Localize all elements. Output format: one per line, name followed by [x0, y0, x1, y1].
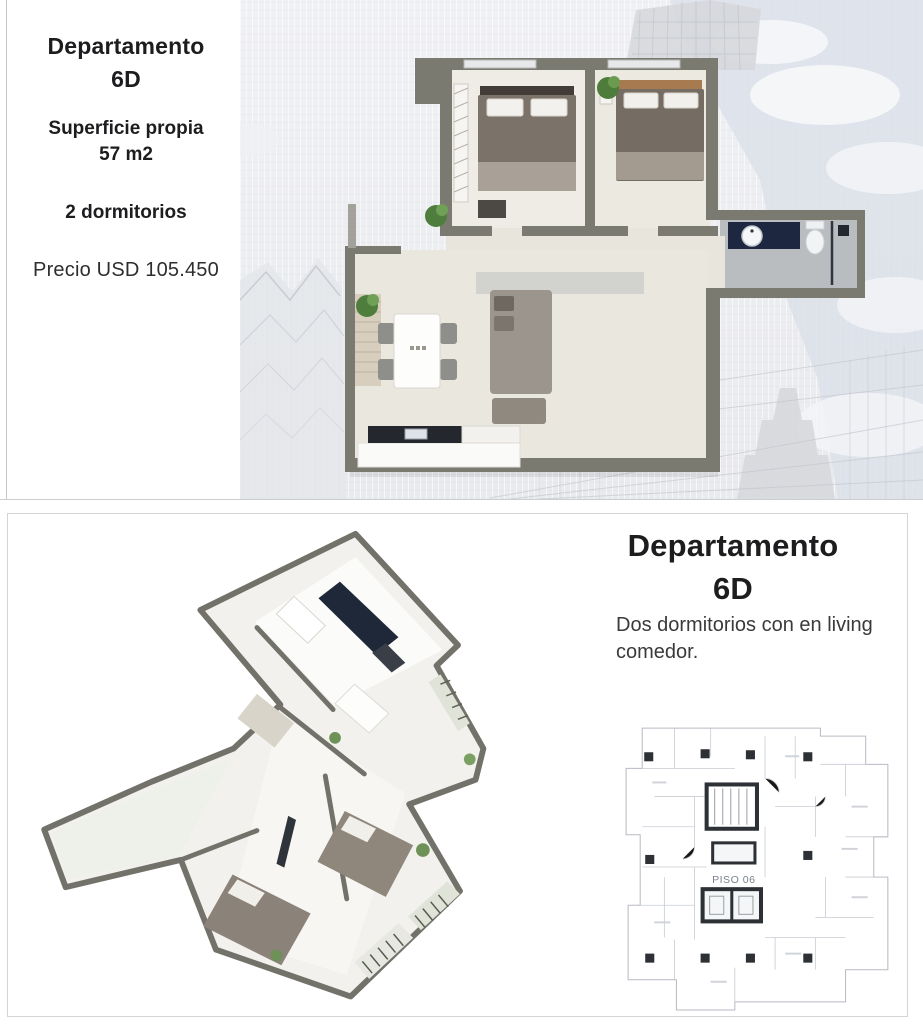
blueprint-elevator-1 [713, 843, 755, 863]
plan-shadow [350, 472, 718, 477]
blueprint-floor-label: PISO 06 [712, 874, 755, 886]
window-bedroom1 [464, 60, 536, 68]
isometric-floorplan-render [26, 528, 566, 1016]
top-panel: Departamento 6D Superficie propia 57 m2 … [0, 0, 923, 500]
topdown-floorplan-render [240, 0, 923, 499]
surface-area-line1: Superficie propia [8, 116, 244, 142]
apartment-title-line1: Departamento [8, 30, 244, 63]
window-bedroom2 [608, 60, 680, 68]
apartment-title-line2: 6D [8, 63, 244, 96]
apartment-title: Departamento 6D [8, 30, 244, 96]
top-render-area [240, 0, 923, 499]
bottom-description-line1: Dos dormitorios con en living [616, 612, 908, 639]
sofa [490, 290, 552, 424]
bottom-description: Dos dormitorios con en living comedor. [616, 612, 908, 666]
floor-blueprint: PISO 06 [614, 716, 908, 1014]
kitchen [358, 426, 520, 467]
bottom-panel: Departamento 6D Dos dormitorios con en l… [7, 513, 908, 1017]
sketch-mountains [240, 258, 345, 499]
blueprint-outline [626, 728, 888, 1010]
bottom-title-line2: 6D [563, 567, 903, 610]
blueprint-elevator-double [703, 889, 761, 921]
bottom-title-line1: Departamento [563, 524, 903, 567]
floor-blueprint-area: PISO 06 [614, 716, 908, 1014]
left-edge-rule [6, 0, 7, 499]
price-label: Precio USD 105.450 [8, 259, 244, 282]
blueprint-partitions [628, 728, 888, 1002]
bottom-description-line2: comedor. [616, 639, 908, 666]
isometric-render-area [26, 528, 566, 1016]
surface-area-line2: 57 m2 [8, 142, 244, 168]
real-estate-flyer: Departamento 6D Superficie propia 57 m2 … [0, 0, 923, 1024]
blueprint-stairwell [707, 784, 757, 828]
surface-area-label: Superficie propia 57 m2 [8, 116, 244, 168]
blueprint-room-labels [652, 756, 867, 982]
bottom-title: Departamento 6D [563, 524, 903, 610]
bedrooms-label: 2 dormitorios [8, 202, 244, 224]
apartment-info-column: Departamento 6D Superficie propia 57 m2 … [8, 0, 244, 499]
